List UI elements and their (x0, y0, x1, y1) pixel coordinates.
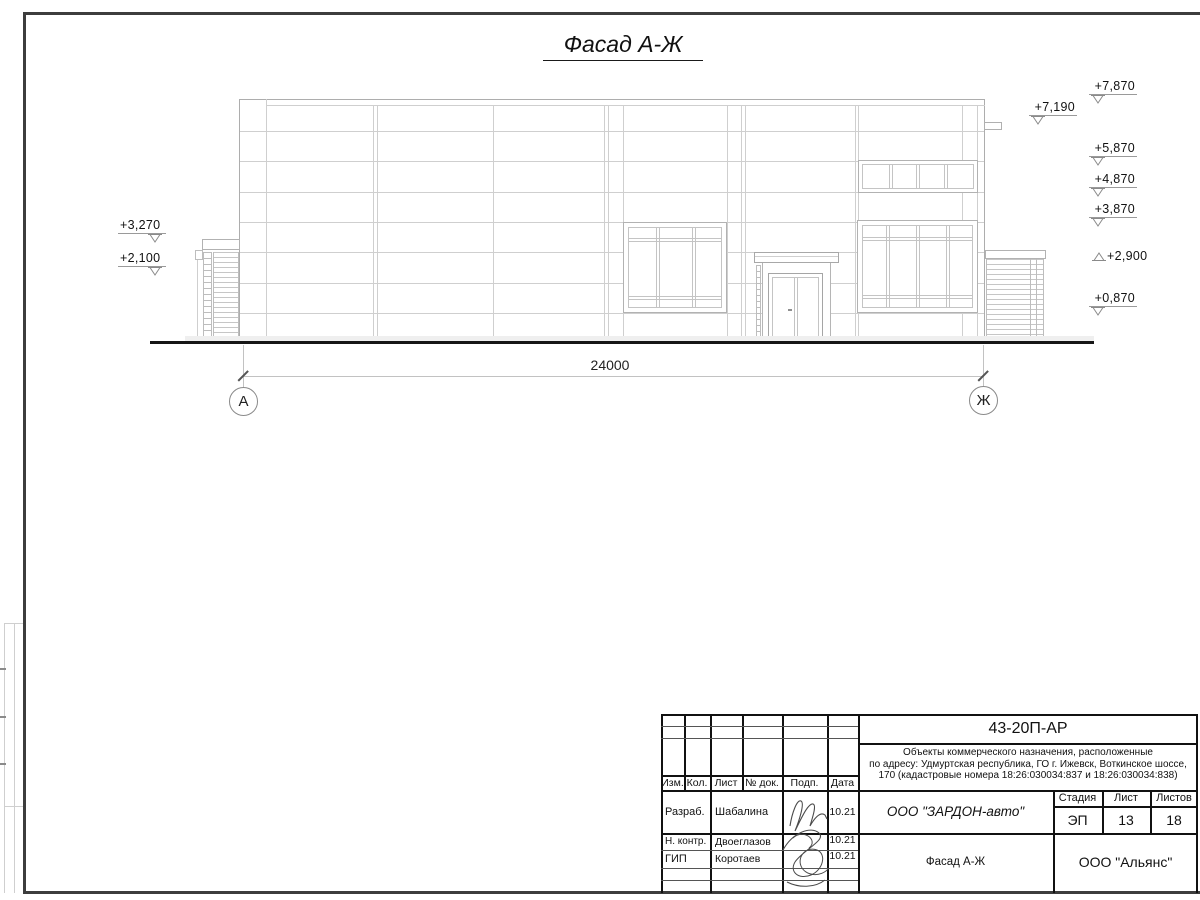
window-mullion (886, 225, 890, 308)
storefront-window-left (623, 222, 727, 313)
binding-margin-line (14, 623, 15, 893)
document-number: 43-20П-АР (858, 714, 1198, 743)
right-wing-mullion (1036, 259, 1037, 341)
frame-bottom (23, 891, 1200, 894)
panel-joint (240, 313, 984, 314)
panel-joint (855, 105, 856, 339)
elevation-arrow-icon (148, 234, 162, 243)
panel-joint (741, 105, 742, 339)
col-header-dok: № док. (742, 775, 782, 790)
drawing-title: Фасад А-Ж (543, 31, 703, 61)
elevation-mark: +4,870 (1089, 172, 1137, 188)
window-transom (628, 296, 722, 300)
door-handle (788, 309, 792, 311)
panel-joint (727, 105, 728, 339)
elevation-mark: +7,190 (1029, 100, 1077, 116)
panel-joint (240, 131, 984, 132)
elevation-value: +3,270 (118, 218, 166, 234)
window-mullion (916, 164, 920, 189)
col-header-izm: Изм. (661, 775, 684, 790)
panel-joint (493, 105, 494, 339)
elevation-mark: +2,100 (118, 251, 166, 267)
binding-margin-tick (0, 716, 6, 718)
elevation-value: +7,870 (1089, 79, 1137, 95)
project-description: Объекты коммерческого назначения, распол… (858, 743, 1198, 794)
canopy-line (755, 256, 838, 257)
right-wing-mullion (1030, 259, 1031, 341)
window-mullion (656, 227, 660, 308)
axis-bubble-a: А (229, 387, 258, 416)
panel-joint (377, 105, 378, 339)
elevation-mark: +3,270 (118, 218, 166, 234)
strip-window (858, 160, 978, 193)
binding-margin-tick (0, 668, 6, 670)
stage-header: Стадия (1053, 790, 1102, 806)
name-korotaev: Коротаев (712, 850, 782, 867)
entrance-tick-strip (756, 265, 761, 341)
window-mullion (916, 225, 920, 308)
elevation-arrow-icon (1091, 157, 1105, 166)
entrance-canopy (754, 252, 839, 263)
axis-label-a: А (238, 393, 248, 410)
role-gip: ГИП (662, 850, 710, 867)
panel-joint (373, 105, 374, 339)
frame-top (23, 12, 1200, 15)
col-header-podp: Подп. (782, 775, 827, 790)
elevation-arrow-icon (1091, 95, 1105, 104)
panel-joint (608, 105, 609, 339)
binding-margin-line (4, 806, 23, 807)
left-wing-louvers (213, 252, 239, 341)
axis-bubble-zh: Ж (969, 386, 998, 415)
role-nkontr: Н. контр. (662, 833, 710, 850)
dimension-value: 24000 (560, 357, 660, 373)
elevation-arrow-icon (1031, 116, 1045, 125)
drawing-sheet: Фасад А-Ж (0, 0, 1200, 900)
panel-joint (604, 105, 605, 339)
left-wing-edge (197, 260, 198, 341)
elevation-value: +5,870 (1089, 141, 1137, 157)
description-line: по адресу: Удмуртская республика, ГО г. … (858, 759, 1198, 771)
entrance-jamb (762, 263, 763, 341)
elevation-arrow-icon (1091, 188, 1105, 197)
dimension-line (243, 376, 983, 377)
col-header-kol: Кол. (684, 775, 710, 790)
frame-left (23, 12, 26, 893)
sheets-total: 18 (1150, 806, 1198, 833)
panel-joint (745, 105, 746, 339)
binding-margin-line (4, 623, 5, 893)
extension-line (243, 345, 244, 387)
window-mullion (946, 225, 950, 308)
elevation-arrow-icon (1092, 252, 1106, 261)
stage-value: ЭП (1053, 806, 1102, 833)
elevation-arrow-icon (1091, 307, 1105, 316)
description-line: 170 (кадастровые номера 18:26:030034:837… (858, 770, 1198, 782)
entrance-jamb (830, 263, 831, 341)
company-name: ООО "Альянс" (1053, 833, 1198, 891)
panel-joint (266, 99, 267, 339)
door-leaf-split (794, 277, 798, 340)
elevation-value: +2,100 (118, 251, 166, 267)
date-razrab: 10.21 (827, 798, 858, 826)
left-wing-ladder (203, 252, 212, 341)
elevation-mark: +7,870 (1089, 79, 1137, 95)
elevation-mark: +3,870 (1089, 202, 1137, 218)
col-header-list: Лист (710, 775, 742, 790)
left-wing-cap (202, 239, 240, 250)
elevation-mark: +5,870 (1089, 141, 1137, 157)
elevation-value: +0,870 (1089, 291, 1137, 307)
window-mullion (944, 164, 948, 189)
window-transom (628, 238, 722, 242)
entrance-door (768, 273, 823, 341)
sheet-title-cell: Фасад А-Ж (858, 833, 1053, 891)
left-wing-step (195, 250, 203, 260)
sheet-header: Лист (1102, 790, 1150, 806)
elevation-value: +3,870 (1089, 202, 1137, 218)
sheet-number: 13 (1102, 806, 1150, 833)
sheets-header: Листов (1150, 790, 1198, 806)
window-mullion (692, 227, 696, 308)
titleblock-line (661, 738, 858, 739)
elevation-arrow-icon (1091, 218, 1105, 227)
binding-margin-tick (0, 763, 6, 765)
col-header-data: Дата (827, 775, 858, 790)
elevation-value: +4,870 (1089, 172, 1137, 188)
right-wing-cap (985, 250, 1046, 259)
org-name: ООО "ЗАРДОН-авто" (858, 790, 1053, 833)
elevation-mark: +0,870 (1089, 291, 1137, 307)
titleblock-line (661, 726, 858, 727)
elevation-mark: +2,900 (1092, 249, 1147, 263)
signature-dvoeglazov-korotaev (779, 824, 835, 888)
elevation-value: +2,900 (1107, 249, 1147, 263)
extension-line (983, 345, 984, 386)
ground-line (150, 341, 1094, 344)
binding-margin-line (4, 623, 23, 624)
parapet-protrusion (984, 122, 1002, 130)
window-mullion (889, 164, 893, 189)
storefront-window-right (857, 220, 978, 313)
name-shabalina: Шабалина (712, 798, 782, 826)
elevation-value: +7,190 (1029, 100, 1077, 116)
axis-label-zh: Ж (977, 392, 991, 409)
name-dvoeglazov: Двоеглазов (712, 833, 782, 850)
role-razrab: Разраб. (662, 798, 710, 826)
description-line: Объекты коммерческого назначения, распол… (858, 747, 1198, 759)
elevation-arrow-icon (148, 267, 162, 276)
